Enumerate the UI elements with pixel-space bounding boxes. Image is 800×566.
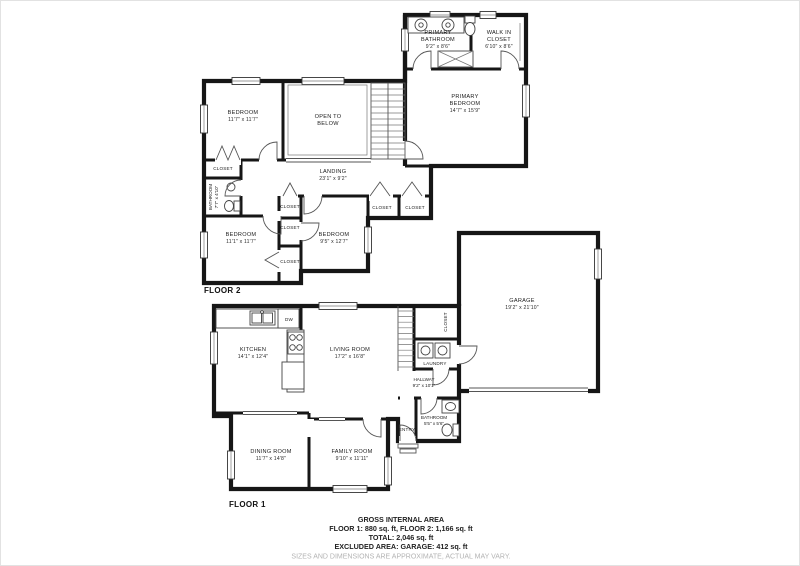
- room-dims: 11'7" x 11'7": [228, 117, 258, 123]
- closet-label: CLOSET: [372, 205, 392, 210]
- garage-door: [469, 388, 588, 392]
- excluded-area: EXCLUDED AREA: GARAGE: 412 sq. ft: [334, 542, 468, 551]
- window: [228, 451, 235, 479]
- refrigerator: [282, 362, 304, 389]
- floor2-plan: PRIMARY BATHROOM 9'2" x 8'6" WALK IN CLO…: [201, 12, 530, 296]
- room-dims: 9'10" x 11'11": [336, 456, 369, 462]
- window: [201, 105, 208, 133]
- room-label: BEDROOM: [319, 232, 350, 238]
- toilet: [465, 16, 475, 36]
- floor2-windows: [201, 12, 530, 259]
- bathtub: [438, 51, 473, 67]
- room-label: BEDROOM: [226, 232, 257, 238]
- window: [523, 85, 530, 117]
- cooktop: [288, 332, 304, 354]
- room-label: DINING ROOM: [250, 449, 291, 455]
- room-label: OPEN TO: [315, 114, 342, 120]
- floor2-stairs: [371, 83, 405, 159]
- room-label: GARAGE: [509, 298, 534, 304]
- room-label: BEDROOM: [450, 101, 481, 107]
- stair-railing: [286, 159, 371, 163]
- total-area: TOTAL: 2,046 sq. ft: [369, 533, 434, 542]
- closet-label: CLOSET: [213, 166, 233, 171]
- closet-label: CLOSET: [280, 259, 300, 264]
- room-label: PRIMARY: [424, 30, 451, 36]
- gross-area-title: GROSS INTERNAL AREA: [358, 515, 444, 524]
- window: [595, 249, 602, 279]
- room-label: BATHROOM: [421, 37, 455, 43]
- svg-text:7'7" x 4'10": 7'7" x 4'10": [214, 185, 219, 208]
- room-dims: 11'1" x 11'7": [226, 239, 256, 245]
- kitchen-sink: [250, 311, 275, 325]
- laundry-fixtures: [418, 343, 450, 358]
- room-label: FAMILY ROOM: [331, 449, 372, 455]
- room-label: HALLWAY: [413, 377, 434, 382]
- closet-label: CLOSET: [280, 204, 300, 209]
- footer-summary: GROSS INTERNAL AREA FLOOR 1: 880 sq. ft,…: [291, 515, 510, 561]
- disclaimer: SIZES AND DIMENSIONS ARE APPROXIMATE, AC…: [291, 554, 510, 561]
- window: [365, 227, 372, 253]
- room-dims: 19'2" x 21'10": [505, 305, 539, 311]
- dishwasher-label: DW: [285, 317, 294, 322]
- floor2-title: FLOOR 2: [204, 286, 241, 295]
- window: [302, 78, 344, 85]
- washer: [418, 343, 433, 358]
- room-label: CLOSET: [487, 37, 511, 43]
- room-label: BATHROOM: [421, 415, 447, 420]
- window: [211, 332, 218, 364]
- toilet: [442, 424, 459, 436]
- laundry-label: LAUNDRY: [423, 361, 446, 366]
- open-to-below-void: [288, 85, 367, 155]
- toilet: [225, 201, 241, 212]
- room-label: KITCHEN: [240, 347, 266, 353]
- floor-plan-page: PRIMARY BATHROOM 9'2" x 8'6" WALK IN CLO…: [0, 0, 800, 566]
- floor1-title: FLOOR 1: [229, 500, 266, 509]
- room-dims: 9'2" x 10'1": [413, 383, 436, 388]
- room-label: PRIMARY: [451, 94, 478, 100]
- window: [402, 29, 409, 51]
- window: [385, 457, 392, 485]
- room-dims: 23'1" x 9'2": [319, 176, 347, 182]
- closet-label-vertical: CLOSET: [443, 312, 448, 332]
- svg-text:BATHROOM: BATHROOM: [208, 184, 213, 210]
- room-label: BEDROOM: [228, 110, 259, 116]
- floor-areas: FLOOR 1: 880 sq. ft, FLOOR 2: 1,166 sq. …: [329, 524, 473, 533]
- window: [333, 486, 367, 493]
- floor1-plan: KITCHEN 14'1" x 12'4" LIVING ROOM 17'2" …: [211, 233, 602, 509]
- room-label: LIVING ROOM: [330, 347, 370, 353]
- dryer: [435, 343, 450, 358]
- room-label: LANDING: [320, 169, 347, 175]
- entry-label: ENTRY: [399, 427, 416, 432]
- garage-walls: [459, 233, 598, 391]
- sink: [442, 400, 459, 413]
- window: [232, 78, 260, 85]
- closet-label: CLOSET: [280, 225, 300, 230]
- floor1-stairs: [398, 306, 414, 371]
- room-dims: 9'5" x 12'7": [320, 239, 348, 245]
- svg-text:CLOSET: CLOSET: [443, 312, 448, 332]
- room-dims: 14'7" x 15'9": [450, 108, 481, 114]
- room-dims: 9'2" x 8'6": [426, 44, 450, 50]
- room-label: WALK IN: [487, 30, 512, 36]
- room-dims: 11'7" x 14'8": [256, 456, 286, 462]
- room-dims: 6'10" x 8'6": [485, 44, 513, 50]
- floor1-labels: KITCHEN 14'1" x 12'4" LIVING ROOM 17'2" …: [229, 298, 539, 509]
- window: [201, 232, 208, 258]
- room-dims: 14'1" x 12'4": [238, 354, 269, 360]
- window: [319, 303, 357, 310]
- room-dims: 17'2" x 16'8": [335, 354, 366, 360]
- room-dims: 5'5" x 5'6": [424, 421, 444, 426]
- window: [480, 12, 496, 19]
- room-label: BELOW: [317, 121, 339, 127]
- floor-plan-drawing: PRIMARY BATHROOM 9'2" x 8'6" WALK IN CLO…: [1, 1, 799, 565]
- room-label-bathroom-vertical: BATHROOM 7'7" x 4'10": [208, 184, 219, 210]
- closet-label: CLOSET: [405, 205, 425, 210]
